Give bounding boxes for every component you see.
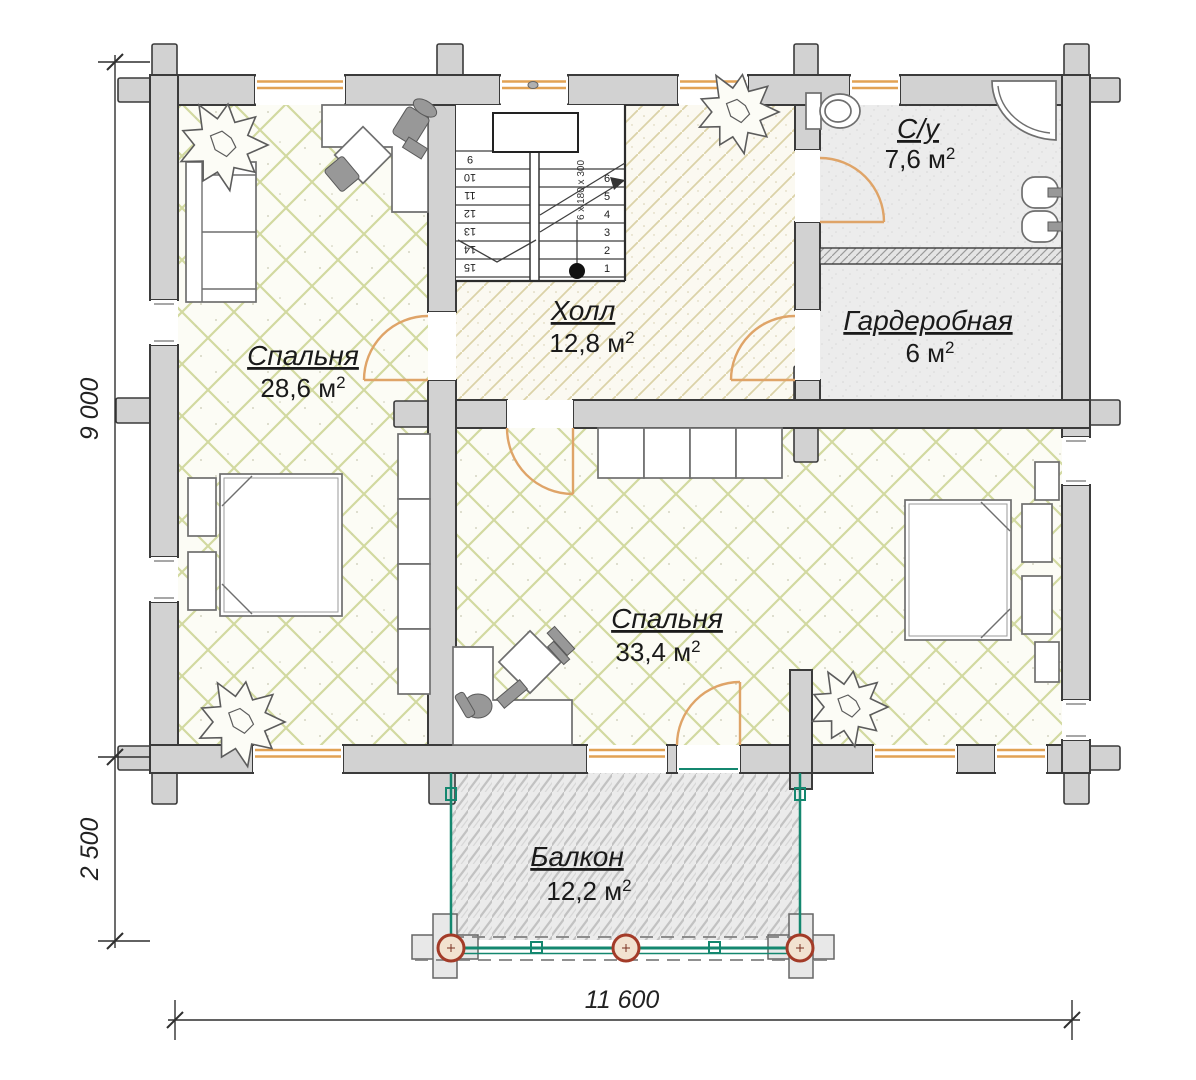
room-label-balcony: Балкон: [530, 841, 623, 872]
wall-segment: [343, 745, 587, 773]
floor-plan-drawing: 9 10 11 12 13 14 15 6 5 4 3 2 1 6 х 180 …: [0, 0, 1196, 1080]
stair-start-dot: [569, 263, 585, 279]
wall-segment: [428, 380, 456, 745]
stair-step-number: 10: [464, 171, 476, 183]
room-label-bedroom-2: Спальня: [611, 603, 723, 634]
wall-segment: [795, 222, 820, 310]
stair-step-number: 9: [467, 153, 473, 165]
dimension-label-9000: 9 000: [76, 378, 104, 441]
wall-marker: [528, 82, 538, 89]
stair-step-number: 5: [604, 191, 610, 203]
floor-plan-page: 9 10 11 12 13 14 15 6 5 4 3 2 1 6 х 180 …: [0, 0, 1196, 1080]
stair-step-number: 3: [604, 227, 610, 239]
wall-segment: [667, 745, 677, 773]
stair-step-number: 13: [464, 225, 476, 237]
stair-step-number: 11: [464, 189, 475, 201]
wall-segment: [150, 75, 178, 300]
stair-step-number: 4: [604, 209, 610, 221]
staircase: 9 10 11 12 13 14 15 6 5 4 3 2 1 6 х 180 …: [456, 105, 625, 281]
stair-step-number: 6: [604, 173, 610, 185]
room-label-bathroom: С/у: [897, 113, 941, 144]
room-label-bedroom-1: Спальня: [247, 340, 359, 371]
room-area-bathroom: 7,6 м2: [885, 144, 956, 174]
wardrobe-unit-icon: [398, 434, 430, 694]
floor-balcony: [451, 773, 800, 940]
stair-step-number: 15: [464, 261, 476, 273]
room-area-bedroom-2: 33,4 м2: [615, 637, 700, 667]
wall-segment: [568, 75, 678, 105]
toilet-icon: [806, 93, 860, 129]
wall-segment: [573, 400, 1090, 428]
wall-segment: [795, 380, 820, 400]
wall-segment: [1062, 75, 1090, 437]
sofa-icon: [186, 162, 256, 302]
closet-row-icon: [598, 428, 782, 478]
room-label-wardrobe: Гардеробная: [843, 305, 1012, 336]
room-area-bedroom-1: 28,6 м2: [260, 373, 345, 403]
stair-step-number: 12: [464, 207, 476, 219]
wall-segment: [150, 345, 178, 557]
room-label-hall: Холл: [550, 295, 616, 326]
room-area-balcony: 12,2 м2: [546, 876, 631, 906]
stair-landing: [493, 113, 578, 152]
stair-step-number: 1: [604, 263, 610, 275]
wall-segment: [957, 745, 995, 773]
room-area-hall: 12,8 м2: [549, 328, 634, 358]
dimension-label-11600: 11 600: [585, 986, 660, 1014]
wall-segment: [1062, 485, 1090, 700]
stair-step-number: 14: [464, 243, 476, 255]
stair-spec-label: 6 х 180 х 300: [576, 160, 587, 220]
dimension-label-2500: 2 500: [76, 818, 104, 882]
wall-segment: [428, 105, 456, 312]
stair-step-number: 2: [604, 245, 610, 257]
wall-segment: [1062, 740, 1090, 773]
wall-segment: [150, 602, 178, 745]
partition-wall: [820, 248, 1062, 264]
wall-stub: [790, 670, 812, 773]
